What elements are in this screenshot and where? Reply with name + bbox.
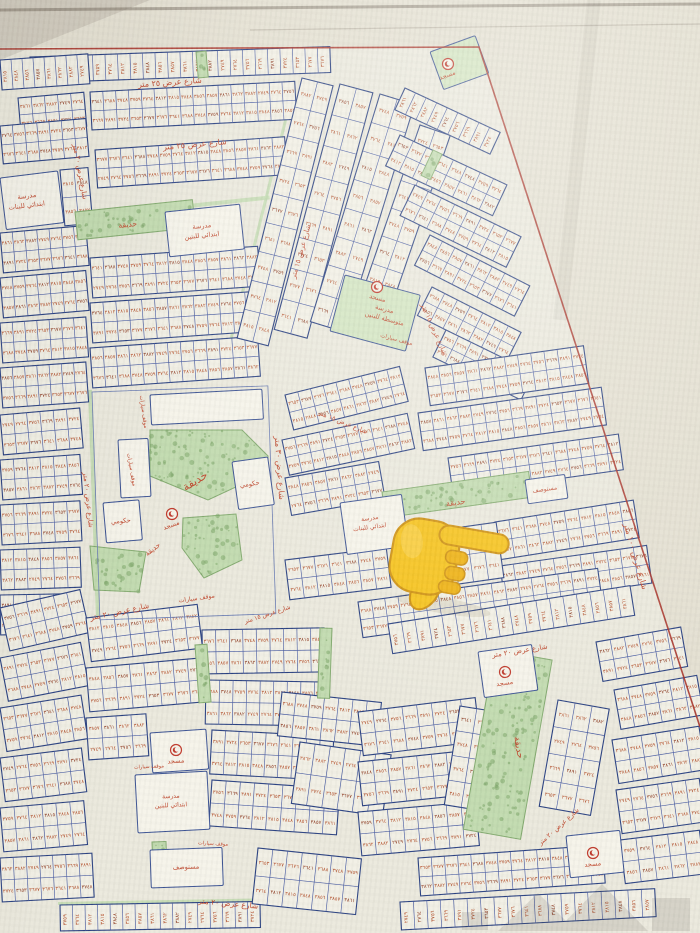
plot-number: ٣٧٥٩: [311, 704, 323, 711]
plot-number: ٣٨٦٢: [220, 711, 231, 717]
plot-number: ٣٨١٥: [298, 637, 309, 643]
plot-number: ٣٧٥٩: [27, 348, 38, 355]
plot-number: ٣٨٦٢: [130, 352, 141, 359]
plot-number: ٢٧٦٤: [41, 864, 52, 871]
plot-number: ٣٦٦٩: [92, 118, 103, 125]
plot-number: ٣٦٦٩: [67, 863, 78, 870]
plot-number: ٣٧٦٤: [209, 322, 220, 329]
plot-number: ٣٧٦٤: [26, 283, 38, 290]
tree-dot: [199, 568, 201, 570]
plot-number: ٣٧٦٤: [255, 888, 267, 895]
plot-number: ٢٧٤٩: [187, 912, 193, 923]
tree-dot: [189, 460, 194, 465]
plot-number: ٣٨٥٦: [125, 913, 131, 924]
plot-number: ٣٨٩١: [148, 172, 159, 179]
tree-dot: [221, 443, 224, 446]
tree-dot: [149, 451, 152, 454]
plot-block: ٣٨١٢٣٨١٥٣٨٤٨٣٨٥٦٣٨٥٧٣٨٦١٣٨٦٢٣٨٨٢٢٧٤٩٢٧٦٤…: [0, 547, 81, 590]
plot-number: ٣٨١٢: [285, 637, 296, 643]
plot-number: ٢٧٤٩: [60, 833, 72, 840]
plot-number: ٣٨١٢: [52, 347, 63, 354]
tree-dot: [208, 435, 210, 437]
tree-dot: [117, 569, 119, 571]
plot-number: ٣٨٩١: [38, 129, 49, 136]
plot-number: ٣٨٥٦: [157, 61, 163, 73]
park-area: [196, 51, 208, 78]
plot-number: ٣٧٦٤: [15, 466, 26, 473]
plot-number: ٢٧٦٤: [417, 911, 424, 923]
plot-number: ٣٨٦٢: [32, 835, 44, 842]
plot-number: ٣٦٥٣: [422, 785, 434, 792]
plot-number: ٣٨٤٨: [196, 368, 207, 375]
plot-number: ٣٦٧٦: [145, 326, 156, 333]
plot-number: ٣٦٤١: [55, 885, 66, 892]
plot-number: ٣٦٥٣: [240, 740, 251, 747]
plot-number: ٣٦٥٣: [295, 57, 301, 69]
tree-dot: [196, 554, 201, 559]
plot-number: ٣٨٤٨: [420, 815, 432, 822]
tree-dot: [191, 432, 193, 434]
plot-number: ٣٧٥٩: [347, 869, 359, 876]
tree-dot: [101, 559, 105, 563]
tree-dot: [118, 556, 121, 559]
plot-number: ٣٨٤٨: [76, 345, 87, 352]
plot-number: ٣٨١٥: [15, 557, 26, 563]
plot-number: ٣٧٥٩: [208, 112, 219, 119]
tree-dot: [203, 538, 205, 540]
tree-dot: [220, 482, 225, 487]
tree-dot: [232, 444, 236, 448]
plot-number: ٣٨٥٧: [329, 896, 341, 903]
plot-number: ٣٧٥٦: [56, 576, 67, 582]
plot-number: ٣٦٤١: [64, 254, 75, 261]
plot-number: ٣٨٩١: [393, 788, 404, 795]
plot-number: ٣٨٨٢: [258, 660, 269, 666]
plot-number: ٣٨٥٧: [89, 725, 100, 732]
plot-number: ٣٨٦١: [235, 365, 246, 372]
tree-dot: [153, 444, 157, 448]
plot-number: ٣٧٥٦: [421, 837, 433, 844]
plot-block: ٣٨٥٦٣٨٥٧٣٨٦١٣٨٦٢٣٨٨٢٢٧٤٩٢٧٦٤٣٧٥٦٣٦٦٩٣٨٩١…: [0, 362, 89, 408]
plot-number: ٣٦٨٨: [182, 113, 193, 120]
plot-number: ٣٨١٢: [339, 707, 351, 714]
plot-number: ٣٦٧٧: [183, 279, 194, 286]
plat-map: ٣٦٧٧٣٦٧٦٣٦٤١٣٦٨٨٣٧٤٨٣٧٥٩٣٧٦٤٣٨١٢٣٨١٥٣٨٤٨…: [0, 0, 700, 933]
plot-number: ٣٧٦٤: [69, 529, 80, 536]
plot-number: ٣٨٩١: [237, 911, 243, 922]
tree-dot: [222, 488, 225, 491]
plot-number: ٢٧٤٩: [59, 100, 71, 107]
tree-dot: [168, 473, 173, 478]
plot-number: ٣٨٥٦: [42, 556, 53, 562]
plot-number: ٣٨٥٧: [4, 838, 16, 845]
plot-number: ٣٦٧٧: [144, 115, 155, 122]
plot-number: ٣٦٤١: [122, 155, 133, 162]
tree-dot: [221, 454, 225, 458]
plot-number: ٣٨٦٢: [119, 723, 130, 730]
plot-number: ٣٨٦٢: [33, 102, 45, 109]
plot-number: ٣٦٧٧: [40, 257, 52, 264]
plot-number: ٣٦٥٣: [148, 693, 160, 700]
plot-number: ٣٧٤٨: [235, 275, 246, 282]
plot-number: ٣٨٦٢: [57, 67, 64, 79]
plot-number: ٣٨٨٢: [377, 840, 389, 847]
plot-number: ٣٨٦٢: [2, 577, 13, 583]
plot-number: ٣٨٦١: [104, 724, 115, 731]
plot-number: ٣٨٦٢: [420, 763, 432, 770]
plot-number: ٣٧٥٩: [564, 903, 571, 915]
plot-number: ٣٧٢٤: [255, 792, 266, 799]
plot-number: ٣٨٦٢: [233, 255, 244, 262]
plot-number: ٢٧٦٤: [232, 59, 238, 71]
plot-number: ٣٨٦٢: [261, 145, 272, 152]
plot-number: ٣٧٥٩: [234, 689, 245, 695]
plot-number: ٣٦٧٦: [196, 278, 207, 285]
plot-number: ٣٧٢٤: [26, 328, 37, 335]
plot-number: ٣٦٧٧: [68, 509, 79, 516]
tree-dot: [226, 453, 228, 455]
plot-number: ٣٨٨٢: [46, 101, 58, 108]
plot-number: ٢٧٤٩: [56, 483, 67, 490]
plot-number: ٣٧٦٤: [108, 63, 114, 75]
tree-dot: [237, 447, 240, 450]
plot-number: ٣٨١٢: [155, 95, 166, 102]
plot-number: ٣٨٦١: [117, 353, 128, 360]
plot-number: ٣٨١٥: [538, 856, 549, 863]
plot-number: ٣٧٥٦: [245, 58, 251, 70]
plot-number: ٣٦٦٩: [136, 173, 147, 180]
plot-number: ٣٧٤٨: [1, 285, 13, 292]
plot-number: ٣٦٦٩: [135, 743, 146, 750]
plot-number: ٣٦٦٩: [227, 790, 238, 797]
plot-number: ٣٨١٢: [30, 813, 42, 820]
plot-block: ٣٨٦١٣٨٦٢٣٨٨٢٢٧٤٩٢٧٦٤٣٧٥٦٣٦٦٩٣٨٩١٣٧٢٤٣٦٥٣…: [0, 226, 89, 273]
plot-number: ٣٧٤٨: [15, 349, 26, 356]
plot-number: ٣٧٢٤: [15, 259, 27, 266]
plot-number: ٣٨٥٧: [118, 673, 130, 680]
plot-number: ٣٦٥٣: [269, 793, 280, 800]
plot-number: ٣٦٦٩: [15, 394, 26, 401]
tree-dot: [185, 448, 187, 450]
tree-dot: [114, 584, 117, 587]
plot-number: ٣٨٨٢: [26, 238, 38, 245]
plot-number: ٣٨٥٦: [209, 367, 220, 374]
plot-number: ٣٨٥٧: [55, 556, 66, 562]
tree-dot: [210, 520, 215, 525]
plot-number: ٣٧٥٦: [213, 789, 224, 796]
plot-number: ٣٦٥٣: [233, 345, 244, 352]
plot-block: ٣٧٤٨٣٧٥٩٣٧٦٤٣٨١٢٣٨١٥٣٨٤٨٣٨٥٦٣٨٥٧٣٨٦١٣٨٦٢…: [0, 271, 89, 318]
plot-number: ٣٨٥٦: [103, 674, 115, 681]
plot-number: ٢٧٤٩: [98, 175, 109, 182]
plot-block: ٣٦٧٦٣٦٤١٣٦٨٨٣٧٤٨٣٧٥٩٣٧٦٤٣٨١٢٣٨١٥٣٨٤٨٣٨٥٦…: [202, 628, 325, 674]
plot-number: ٣٨٨٢: [50, 372, 61, 379]
plot-number: ٣٧٤٨: [70, 436, 82, 443]
plot-number: ٣٨٥٧: [3, 487, 14, 494]
tree-dot: [159, 446, 161, 448]
watermark-shape: [652, 898, 690, 931]
plot-number: ٣٦٧٧: [17, 441, 29, 448]
plot-number: ٣٧٥٦: [474, 880, 485, 887]
plot-number: ٣٨١٢: [156, 261, 167, 268]
plot-number: ٣٦٦٩: [69, 575, 80, 581]
tree-dot: [194, 526, 197, 529]
plot-block: ٣٦٦٩٣٨٩١٣٧٢٤٣٦٥٣٣٦٧٧٣٦٧٦٣٦٤١٣٦٨٨٣٧٤٨٣٧٥٩…: [0, 317, 89, 363]
plot-number: ٣٨٨٢: [246, 254, 257, 261]
plot-number: ٢٧٤٩: [272, 659, 283, 665]
tree-dot: [136, 589, 140, 593]
plot-number: ٣٧٦٤: [172, 151, 183, 158]
plot-number: ٢٧٦٤: [15, 421, 27, 428]
plot-number: ٢٧٤٩: [208, 302, 219, 309]
plot-number: ٣٨٩١: [93, 330, 104, 337]
plot-number: ٣٧٦٤: [220, 111, 231, 118]
plot-number: ٣٧٥٦: [233, 300, 244, 307]
tree-dot: [236, 543, 238, 545]
plot-number: ٣٦٧٦: [42, 886, 53, 893]
plot-number: ٣٨١٢: [233, 110, 244, 117]
tree-dot: [175, 435, 178, 438]
tree-dot: [205, 519, 207, 521]
plot-number: ٣٨١٢: [105, 309, 116, 316]
plot-number: ٣٨١٢: [525, 857, 536, 864]
plot-number: ٣٨١٢: [254, 815, 265, 822]
tree-dot: [95, 558, 99, 562]
plot-number: ٣٦٧٦: [320, 56, 326, 68]
plot-number: ٣٧٥٦: [3, 395, 14, 402]
plot-number: ٣٨١٢: [170, 370, 181, 377]
plot-number: ٣٦٨٨: [3, 350, 14, 357]
plot-number: ٣٧٢٤: [282, 57, 288, 69]
plot-number: ٣٦٨٨: [119, 373, 130, 380]
plot-number: ٣٦٤١: [157, 325, 168, 332]
plot-number: ٣٨٤٨: [145, 62, 151, 74]
plot-number: ٣٧٥٩: [56, 529, 67, 536]
tree-dot: [160, 479, 163, 482]
plot-number: ٣٨٦١: [150, 913, 156, 924]
plot-number: ٣٧٥٦: [299, 659, 310, 665]
plot-number: ٣٨٥٦: [631, 900, 638, 912]
plot-number: ٣٦٦٩: [443, 909, 450, 921]
plot-number: ٣٧٥٩: [130, 97, 141, 104]
plot-number: ٣٨٩١: [213, 739, 224, 746]
plot-number: ٣٨١٢: [2, 557, 13, 563]
plot-number: ٣٦٨٨: [472, 861, 483, 868]
plot-number: ٣٨٨٢: [690, 861, 700, 868]
plot-number: ٣٦٧٦: [52, 255, 64, 262]
plot-number: ٣٨٥٦: [75, 278, 87, 285]
plot-number: ٣٨٩١: [119, 695, 130, 702]
tree-dot: [213, 551, 218, 556]
plot-number: ٣٨١٢: [261, 690, 272, 696]
plot-number: ٣٨٥٧: [105, 354, 116, 361]
plot-number: ٣٧٢٤: [161, 171, 172, 178]
tree-dot: [157, 461, 161, 465]
plot-number: ٣٨١٢: [270, 889, 282, 896]
plot-number: ٣٧٤٨: [43, 530, 54, 537]
tree-dot: [149, 434, 154, 439]
plot-number: ٣٦٥٣: [28, 258, 40, 265]
facility-plot: [150, 389, 263, 425]
plot-number: ٣٨١٥: [198, 149, 209, 156]
plot-number: ٢٧٦٤: [42, 576, 53, 582]
plot-number: ٣٨٥٧: [294, 724, 306, 731]
plot-number: ٣٨٥٦: [280, 723, 292, 730]
plot-number: ٣٦٦٩: [225, 911, 231, 922]
plot-number: ٣٨٤٨: [210, 149, 221, 156]
plot-number: ٣٨٥٦: [376, 768, 388, 775]
plot-number: ٣٧٥٦: [430, 910, 437, 922]
plot-number: ٣٧٥٩: [361, 820, 373, 827]
plot-number: ٣٧٢٤: [42, 510, 53, 517]
plot-number: ٣٨٥٧: [137, 913, 143, 924]
facility-label: مدرسة: [162, 793, 180, 801]
plot-number: ٢٧٤٩: [447, 882, 458, 889]
plot-number: ٣٦٥٣: [258, 860, 270, 867]
crescent-icon: [376, 284, 381, 289]
plot-number: ٣٨٩١: [500, 878, 511, 885]
tree-dot: [235, 526, 237, 528]
plot-number: ٢٧٤٩: [52, 300, 64, 307]
plot-number: ٣٧٤٨: [237, 166, 248, 173]
plot-number: ٣٨١٥: [246, 110, 257, 117]
plot-number: ٣٨٦١: [15, 304, 26, 311]
plot-number: ٣٧٤٨: [221, 689, 232, 695]
plot-block: ٢٧٤٩٢٧٦٤٣٧٥٦٣٦٦٩٣٨٩١٣٧٢٤٣٦٥٣٣٦٧٧٣٦٧٦٣٦٤١…: [0, 408, 83, 455]
plot-number: ٣٦٧٧: [540, 875, 551, 882]
plot-number: ٣٧٥٩: [499, 859, 510, 866]
tree-dot: [185, 452, 190, 457]
tree-dot: [103, 573, 107, 577]
tree-dot: [220, 528, 223, 531]
tree-dot: [208, 525, 210, 527]
plot-number: ٢٧٤٩: [63, 371, 74, 378]
plot-number: ٣٧٥٩: [14, 284, 26, 291]
tree-dot: [207, 464, 210, 467]
plot-number: ٣٧٥٦: [212, 911, 218, 922]
tree-dot: [244, 443, 249, 448]
plot-number: ٣٧٢٤: [39, 392, 50, 399]
plot-number: ٣٦٧٦: [267, 742, 278, 749]
plot-number: ٣٨٦٢: [182, 304, 193, 311]
tree-dot: [216, 526, 219, 529]
plot-number: ٣٧٤٨: [332, 868, 344, 875]
plot-block: ٣٧٥٩٣٧٦٤٣٨١٢٣٨١٥٣٨٤٨٣٨٥٦٣٨٥٧٣٨٦١٣٨٦٢٣٨٨٢: [620, 830, 700, 883]
tree-dot: [104, 581, 108, 585]
crescent-icon: [592, 850, 597, 855]
plot-number: ٣٦٧٧: [163, 691, 175, 698]
plot-number: ٣٨٦١: [207, 711, 218, 717]
plot-number: ٣٨١٥: [63, 181, 75, 188]
plot-number: ٣٨٥٧: [207, 93, 218, 100]
plot-number: ٣٦٥٣: [527, 876, 538, 883]
tree-dot: [158, 475, 161, 478]
tree-dot: [207, 471, 209, 473]
tree-dot: [149, 449, 151, 451]
plot-number: ٣٨٦١: [405, 765, 416, 772]
plot-number: ٣٨٦١: [46, 68, 53, 80]
plot-number: ٣٨٦٢: [38, 372, 49, 379]
tree-dot: [101, 570, 104, 573]
tree-dot: [197, 519, 200, 522]
plot-number: ٣٨٥٧: [14, 374, 25, 381]
plot-number: ٣٧٥٩: [196, 323, 207, 330]
map-photo: ٣٦٧٧٣٦٧٦٣٦٤١٣٦٨٨٣٧٤٨٣٧٥٩٣٧٦٤٣٨١٢٣٨١٥٣٨٤٨…: [0, 0, 700, 933]
tree-dot: [220, 541, 225, 546]
plot-number: ٣٨٨٢: [15, 866, 26, 873]
plot-number: ٢٧٤٩: [29, 577, 40, 583]
tree-dot: [198, 537, 200, 539]
plot-number: ٣٧٥٦: [123, 174, 134, 181]
tree-dot: [155, 475, 157, 477]
plot-number: ٣٨٨٢: [195, 303, 206, 310]
plot-number: ٣٦٧٦: [109, 156, 120, 163]
plot-number: ٣٨١٢: [87, 913, 93, 924]
plot-number: ٣٨٥٧: [217, 660, 228, 666]
plot-number: ٣٦٥٣: [16, 888, 27, 895]
plot-number: ٣٨٤٨: [28, 557, 39, 563]
plot-number: ٣٨٥٧: [310, 819, 321, 826]
tree-dot: [154, 452, 158, 456]
mosque-label: مسجد: [167, 756, 184, 765]
plot-number: ٣٧٤٨: [296, 703, 308, 710]
tree-dot: [178, 446, 180, 448]
plot-block: ٣٧٥٦٣٦٦٩٣٨٩١٣٧٢٤٣٦٥٣٣٦٧٧٣٦٧٦٣٦٤١٣٦٨٨٣٧٤٨…: [0, 501, 82, 545]
tree-dot: [188, 532, 190, 534]
tree-dot: [120, 580, 122, 582]
plot-number: ٣٦٧٧: [307, 56, 313, 68]
plot-number: ٣٨٥٧: [156, 306, 167, 313]
plot-number: ٣٨٥٧: [390, 766, 402, 773]
plot-number: ٣٨٤٨: [300, 893, 312, 900]
plot-number: ٣٧٥٩: [95, 64, 101, 76]
tree-dot: [221, 555, 226, 560]
plot-number: ٣٨٥٦: [266, 764, 277, 771]
plot-number: ٣٨٦٢: [232, 91, 243, 98]
tree-dot: [248, 440, 250, 442]
tree-dot: [139, 568, 143, 572]
plot-number: ٣٦٦٩: [195, 348, 206, 355]
plot-number: ٣٧٢٤: [50, 128, 62, 135]
plot-number: ٢٧٦٤: [106, 284, 117, 291]
plot-number: ٣٨٥٦: [296, 818, 307, 825]
plot-number: ٣٨٦٢: [363, 842, 375, 849]
plot-number: ٣٧٦٤: [39, 347, 50, 354]
plot-number: ٣٨٨٢: [434, 762, 446, 769]
tree-dot: [176, 430, 178, 432]
plot-number: ٣٦٧٦: [30, 439, 42, 446]
tree-dot: [204, 462, 207, 465]
plot-number: ٣٧٥٩: [249, 165, 260, 172]
plot-number: ٣٨٥٧: [235, 147, 246, 154]
plot-number: ٣٧٦٤: [16, 815, 28, 822]
plot-number: ٣٨٩١: [14, 329, 25, 336]
tree-dot: [199, 449, 202, 452]
plot-number: ٢٧٤٩: [247, 712, 258, 718]
plot-number: ٢٧٦٤: [110, 175, 121, 182]
plot-number: ٣٨٦١: [20, 103, 31, 110]
tree-dot: [210, 442, 214, 446]
plot-number: ٢٧٦٤: [461, 881, 472, 888]
plot-number: ٣٨٦١: [248, 146, 259, 153]
plot-number: ٣٧٢٤: [118, 116, 129, 123]
plot-number: ٣٦٧٧: [29, 887, 40, 894]
plot-number: ٢٧٤٩: [2, 422, 14, 429]
tree-dot: [215, 538, 220, 543]
plot-number: ٣٨١٥: [169, 260, 180, 267]
plot-number: ٣٨١٢: [120, 63, 126, 75]
plot-number: ٣٨٦١: [1, 240, 12, 247]
